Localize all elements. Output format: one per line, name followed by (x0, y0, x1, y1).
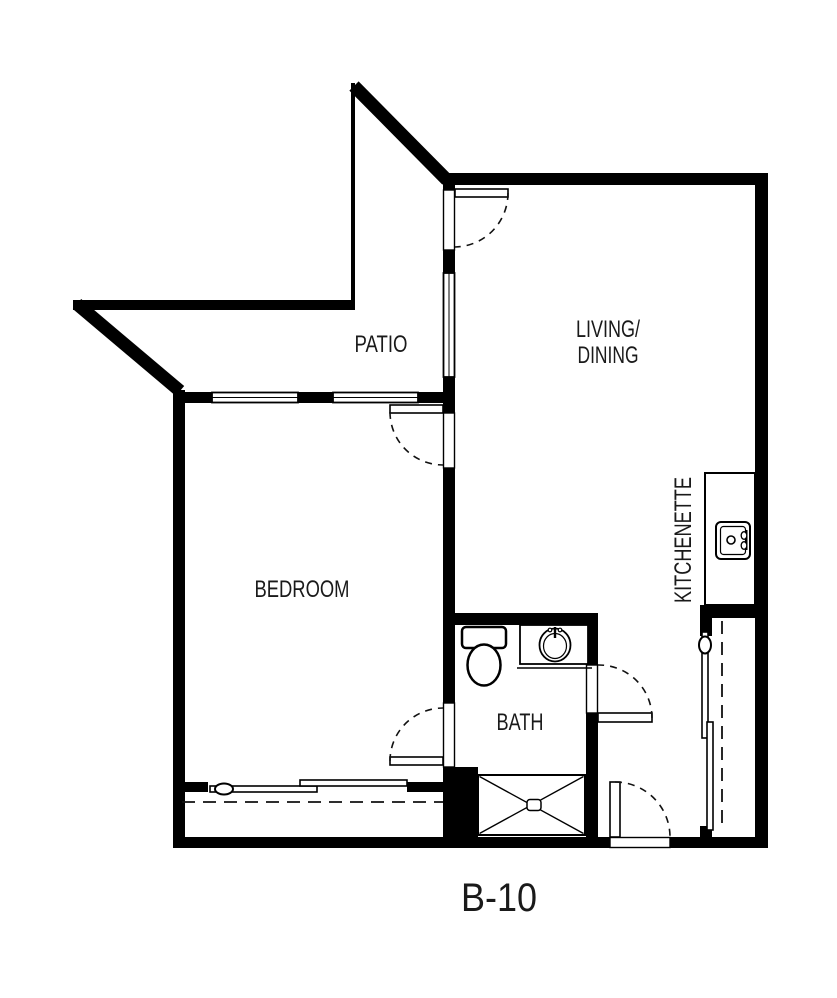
door-pull-icon (215, 784, 233, 795)
doorway-frame (587, 665, 598, 713)
door-swing-icon (455, 193, 508, 247)
sliding-closet-door-icon (300, 780, 407, 786)
bath-label: BATH (497, 709, 544, 736)
unit-title: B-10 (461, 876, 537, 920)
door-leaf (610, 782, 620, 837)
wall-divider-2 (443, 468, 455, 703)
door-swing-icon (390, 708, 443, 761)
sliding-closet-door-icon (707, 722, 713, 830)
wall-top (443, 173, 768, 185)
kitchen-sink-icon (716, 522, 750, 559)
wall-bedroom-closet-stub-left (185, 782, 208, 792)
bedroom-label: BEDROOM (255, 576, 350, 603)
shower-drain (527, 800, 541, 811)
door-swing-icon (598, 665, 652, 718)
wall-living-west-1 (443, 173, 455, 190)
wall-bedroom-north-1 (173, 392, 212, 403)
door-leaf (598, 713, 652, 722)
wall-right (755, 173, 768, 848)
walls (73, 83, 768, 848)
doorway-frame (444, 703, 455, 767)
door-swing-icon (615, 782, 670, 837)
wall-patio-top (73, 300, 355, 310)
wall-bath-east-2 (586, 713, 598, 837)
faucet-handle (548, 628, 552, 632)
faucet-handle (741, 542, 747, 550)
wall-patio-notch (351, 83, 355, 304)
wall-diagonal-lower (77, 304, 180, 391)
wall-diagonal-upper (354, 86, 447, 180)
wall-bedroom-closet-stub-right (407, 782, 443, 792)
bedroom-closet (182, 780, 443, 802)
patio-label: PATIO (355, 331, 408, 358)
door-pull-icon (699, 637, 711, 654)
doorway-frame (444, 413, 455, 468)
wall-living-west-2 (443, 250, 455, 273)
kitchenette-counter (705, 473, 755, 605)
door-leaf (390, 405, 443, 413)
wall-divider-3 (443, 767, 478, 848)
floorplan-drawing: PATIO LIVING/ DINING BEDROOM KITCHENETTE… (0, 0, 837, 998)
toilet-icon (462, 627, 506, 686)
bathroom-sink-icon (540, 627, 571, 662)
wall-closet-top (700, 605, 765, 618)
hall-closet (699, 621, 722, 831)
door-leaf (390, 757, 443, 765)
bathroom-vanity (517, 625, 592, 668)
faucet-handle (558, 628, 562, 632)
floorplan-page: PATIO LIVING/ DINING BEDROOM KITCHENETTE… (0, 0, 837, 998)
wall-bath-top (443, 613, 598, 625)
bedroom-bath-door (390, 703, 455, 767)
bath-hall-door (587, 665, 653, 722)
wall-left (173, 390, 185, 848)
faucet-handle (741, 532, 747, 540)
bedroom-north-door (390, 405, 455, 468)
wall-divider-1 (443, 392, 455, 413)
kitchenette-label: KITCHENETTE (670, 477, 697, 603)
hall-exit-door (610, 782, 670, 848)
patio-entry-door (444, 189, 509, 250)
living-dining-label-line2: DINING (578, 342, 639, 369)
door-swing-icon (390, 412, 443, 465)
living-dining-label-line1: LIVING/ (576, 316, 640, 343)
sink-drain (727, 536, 735, 544)
door-leaf (455, 189, 508, 197)
windows (212, 273, 455, 403)
shower-pan-icon (478, 775, 585, 835)
doorway-threshold (610, 838, 670, 848)
doorway-frame (444, 190, 455, 250)
wall-bedroom-north-2 (298, 392, 333, 403)
toilet-bowl (468, 645, 501, 686)
